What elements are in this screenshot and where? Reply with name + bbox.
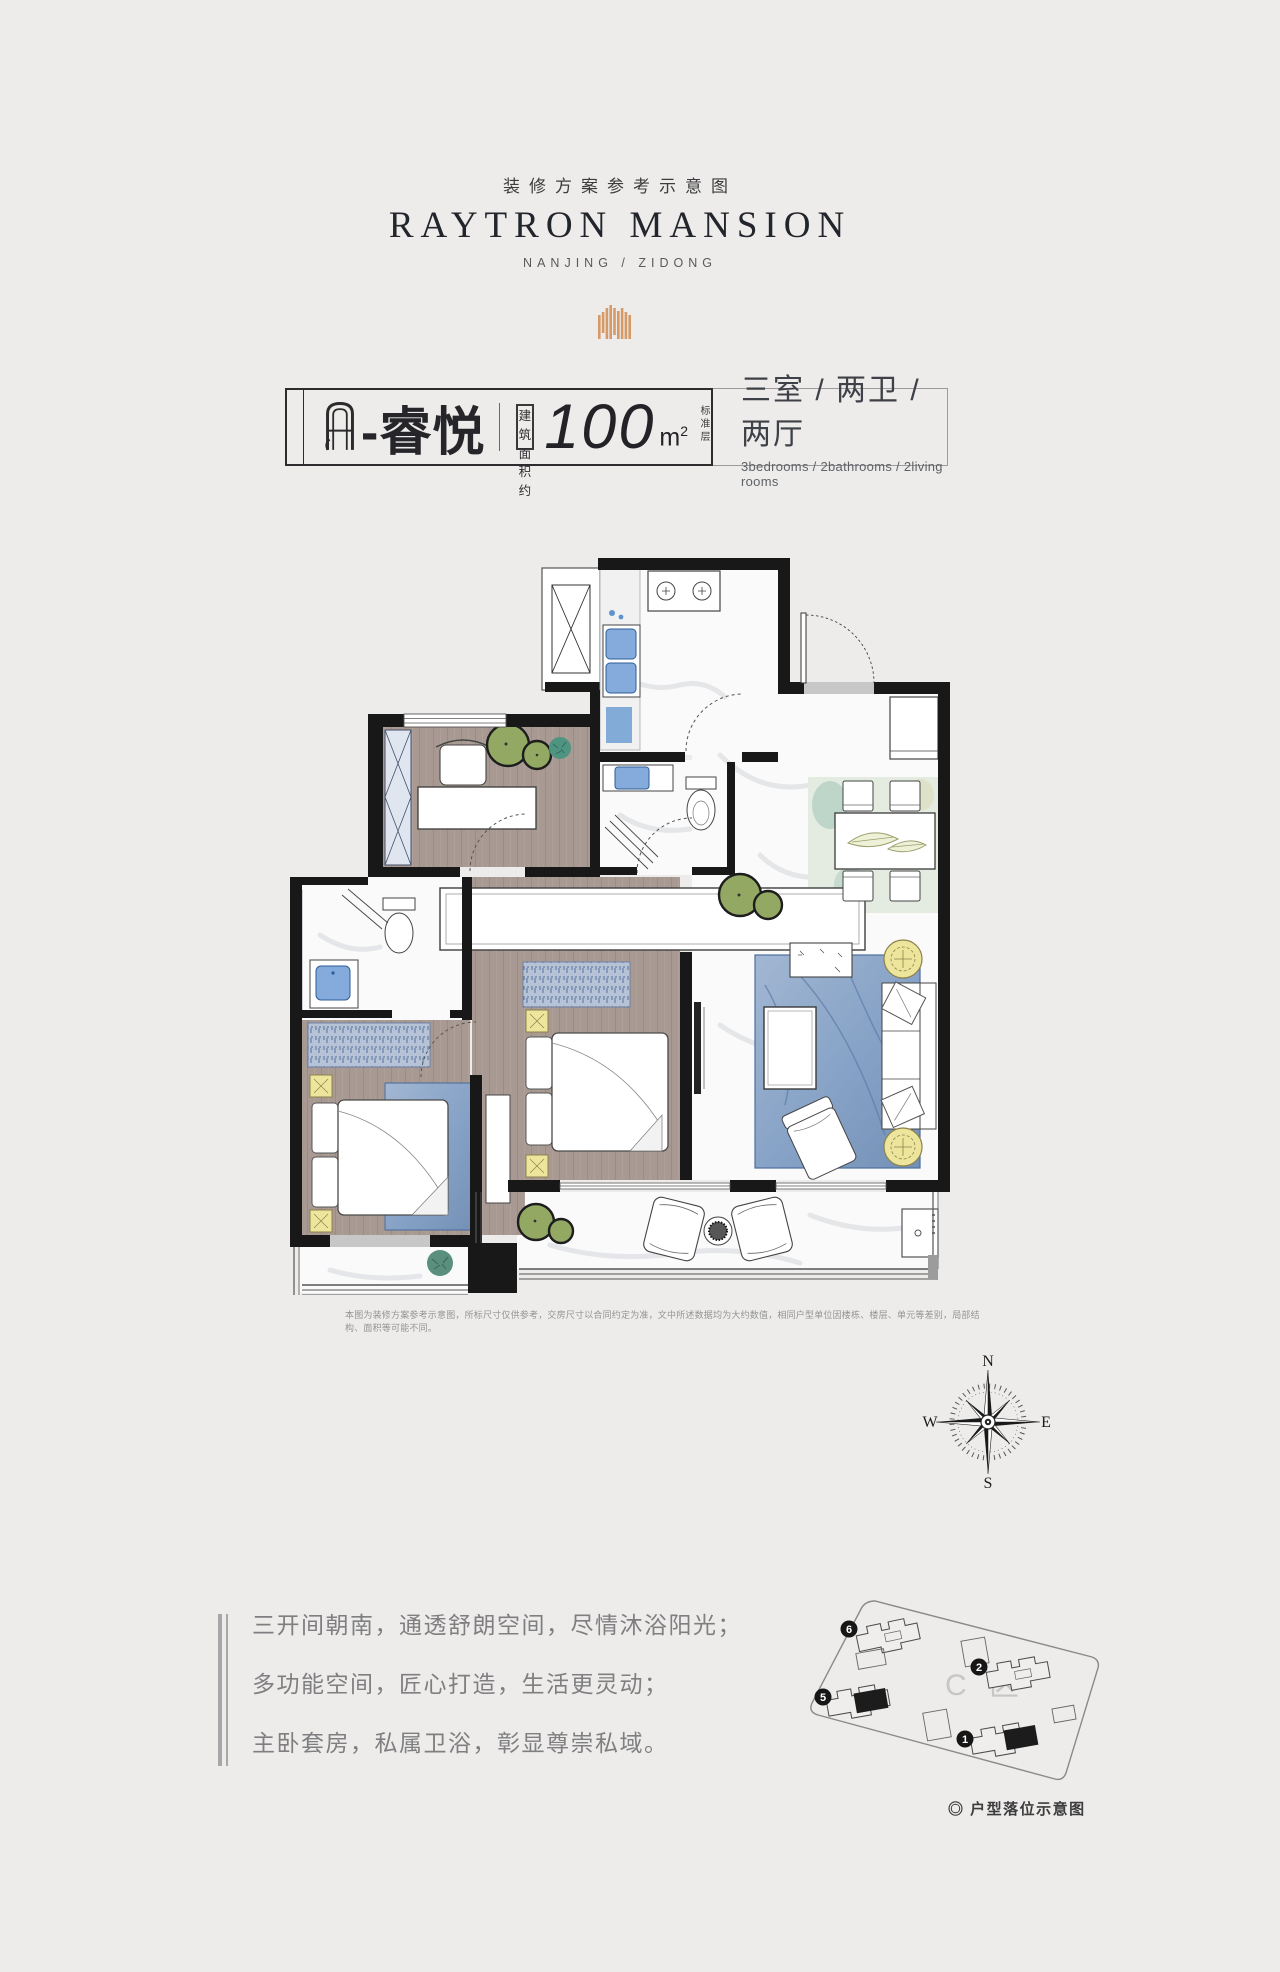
area-label-box: 建 筑 面积约	[516, 404, 535, 450]
dining-chair	[843, 871, 873, 901]
toilet-icon	[686, 777, 716, 830]
site-plan-caption: ◎ 户型落位示意图	[948, 1798, 1086, 1819]
unit-a-monogram-icon	[323, 399, 357, 456]
sliding-door-glass	[560, 1183, 886, 1189]
project-title: RAYTRON MANSION	[0, 204, 1240, 247]
badge-2: 2	[976, 1662, 982, 1674]
study-window	[404, 714, 506, 727]
ensuite-sink-icon	[316, 966, 350, 1000]
area-unit: m2	[659, 423, 688, 452]
balcony-corner	[928, 1255, 938, 1279]
compass-s: S	[984, 1475, 993, 1492]
bench	[790, 943, 852, 977]
desk	[418, 787, 536, 829]
wardrobe-icon	[385, 730, 411, 865]
dining-chair	[890, 781, 920, 811]
disclaimer-text: 本图为装修方案参考示意图，所标尺寸仅供参考，交房尺寸以合同约定为准，文中所述数据…	[345, 1308, 985, 1334]
pillow	[312, 1103, 338, 1153]
area-label-line2: 面积约	[519, 447, 532, 499]
tv-icon	[694, 1002, 701, 1094]
compass-n: N	[982, 1354, 994, 1370]
compass-rose-icon: N S W E	[918, 1354, 1058, 1494]
building-5	[825, 1683, 891, 1722]
badge-1: 1	[962, 1734, 968, 1746]
pillow	[526, 1093, 552, 1145]
project-location: NANJING / ZIDONG	[0, 256, 1240, 270]
area-unit-base: m	[659, 424, 680, 452]
unit-title-bar: -睿悦 建 筑 面积约 100 m2 标准层 三室 / 两卫 / 两厅 3bed…	[285, 388, 948, 466]
floor-plan	[290, 555, 950, 1295]
compass-w: W	[922, 1414, 938, 1431]
master-balcony-plant-icon	[427, 1250, 453, 1276]
selling-point-2: 多功能空间，匠心打造，生活更灵动；	[252, 1671, 812, 1697]
floor-note: 标准层	[696, 405, 711, 451]
building-6	[855, 1616, 922, 1657]
highlighted-unit	[853, 1688, 888, 1713]
center-console	[440, 888, 865, 950]
building-1	[969, 1720, 1039, 1760]
entry-door	[801, 613, 874, 683]
bed	[338, 1100, 448, 1215]
desk-chair	[436, 740, 490, 785]
stove-icon	[648, 571, 720, 611]
entry-threshold	[804, 682, 874, 694]
poster-page: 装修方案参考示意图 RAYTRON MANSION NANJING / ZIDO…	[0, 0, 1280, 1972]
unit-title-left: -睿悦 建 筑 面积约 100 m2 标准层	[285, 388, 713, 466]
sofa	[881, 982, 936, 1129]
dining-chair	[890, 871, 920, 901]
brand-stripes-icon	[598, 303, 632, 344]
unit-name: -睿悦	[361, 390, 485, 465]
quote-bars	[218, 1614, 230, 1766]
badge-5: 5	[820, 1692, 826, 1704]
corridor-cabinet	[486, 1095, 510, 1203]
compass-e: E	[1041, 1414, 1051, 1431]
bath-sink-icon	[615, 767, 649, 789]
rooms-en: 3bedrooms / 2bathrooms / 2living rooms	[741, 459, 947, 489]
shoe-cabinet	[890, 697, 938, 759]
badge-6: 6	[846, 1624, 852, 1636]
dining-table	[835, 813, 935, 869]
selling-points: 三开间朝南，通透舒朗空间，尽情沐浴阳光； 多功能空间，匠心打造，生活更灵动； 主…	[252, 1612, 812, 1789]
pillow	[526, 1037, 552, 1089]
equipment-platform	[542, 568, 600, 692]
side-table-icon	[884, 1128, 922, 1166]
balcony-threshold	[330, 1235, 430, 1247]
side-table-icon	[884, 940, 922, 978]
selling-point-1: 三开间朝南，通透舒朗空间，尽情沐浴阳光；	[252, 1612, 812, 1638]
headboard-cushion	[523, 962, 630, 1007]
pillow	[312, 1157, 338, 1207]
area-unit-sup: 2	[680, 423, 688, 439]
headboard-cushion	[308, 1023, 430, 1067]
dining-chair	[843, 781, 873, 811]
bed	[552, 1033, 668, 1151]
selling-point-3: 主卧套房，私属卫浴，彰显尊崇私域。	[252, 1730, 812, 1756]
coffee-table	[764, 1007, 816, 1089]
balcony-table-plant-icon	[704, 1217, 732, 1245]
area-label-line1: 建 筑	[519, 409, 532, 442]
unit-title-right: 三室 / 两卫 / 两厅 3bedrooms / 2bathrooms / 2l…	[713, 389, 947, 465]
toilet-icon	[383, 898, 415, 953]
kitchen-mat	[606, 707, 632, 743]
teal-plant-icon	[549, 737, 571, 759]
area-value: 100	[544, 391, 655, 463]
rooms-cn: 三室 / 两卫 / 两厅	[741, 365, 947, 453]
site-plan: C 区 6 2 5	[795, 1583, 1115, 1818]
header-subtitle: 装修方案参考示意图	[0, 172, 1240, 197]
